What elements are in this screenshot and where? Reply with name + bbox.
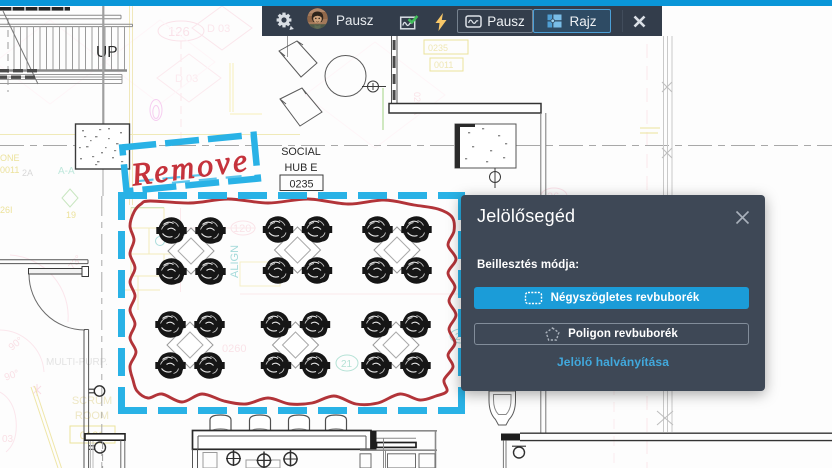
svg-text:26I: 26I — [0, 205, 13, 215]
svg-text:A-A: A-A — [58, 166, 75, 177]
svg-text:03: 03 — [2, 434, 14, 445]
svg-text:HUB E: HUB E — [285, 162, 318, 174]
svg-text:D 03: D 03 — [207, 23, 230, 35]
svg-text:19: 19 — [66, 210, 76, 220]
svg-text:ALIGN: ALIGN — [229, 245, 241, 278]
svg-text:SCRUM: SCRUM — [72, 395, 112, 407]
svg-text:0011: 0011 — [434, 60, 453, 70]
svg-text:0260: 0260 — [222, 343, 246, 355]
svg-text:21: 21 — [341, 359, 353, 370]
svg-text:ROOM: ROOM — [75, 410, 109, 422]
svg-text:Remove: Remove — [128, 142, 249, 193]
svg-text:90°: 90° — [7, 335, 26, 353]
svg-text:0011: 0011 — [0, 165, 19, 175]
svg-text:UP: UP — [96, 44, 118, 61]
svg-text:126: 126 — [168, 24, 190, 39]
svg-text:ONE: ONE — [0, 153, 20, 163]
svg-text:SOCIAL: SOCIAL — [281, 146, 321, 158]
svg-text:90°: 90° — [3, 368, 21, 384]
svg-text:2A: 2A — [22, 168, 33, 178]
svg-text:0235: 0235 — [289, 179, 313, 191]
svg-text:120: 120 — [233, 223, 251, 235]
svg-text:MULTI-PURP.: MULTI-PURP. — [46, 357, 108, 368]
svg-text:0235: 0235 — [428, 43, 448, 53]
